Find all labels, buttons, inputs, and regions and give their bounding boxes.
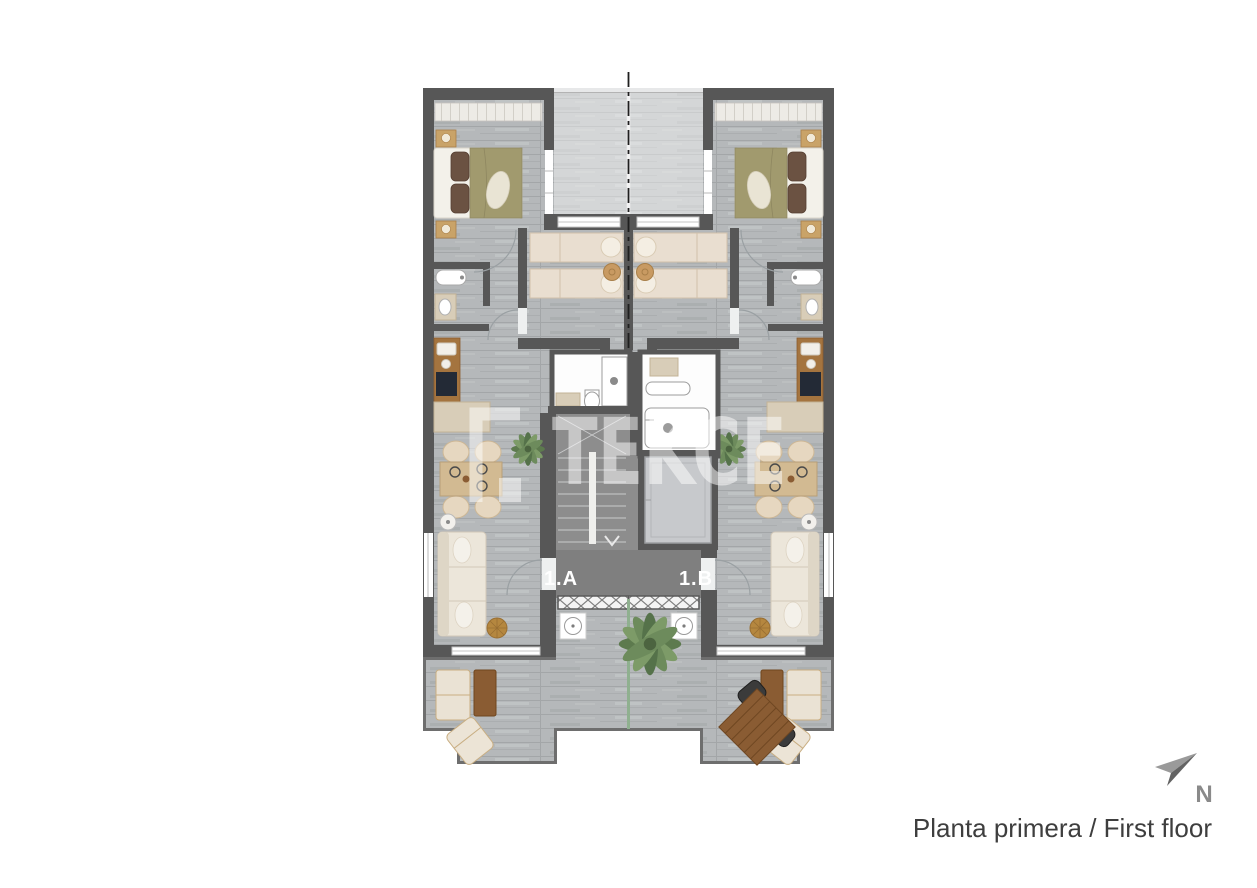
north-label: N <box>1195 781 1212 808</box>
floor-plan-image: 1.A 1.B TEKCE N Planta primera / First f… <box>0 0 1257 888</box>
unit-label-1b: 1.B <box>679 568 713 590</box>
north-arrow-icon <box>1155 753 1197 786</box>
unit-label-1a: 1.A <box>544 568 578 590</box>
plan-caption: Planta primera / First floor <box>913 813 1212 843</box>
floor-plan-page: 1.A 1.B TEKCE N Planta primera / First f… <box>0 0 1257 888</box>
watermark-text: TEKCE <box>552 399 787 506</box>
